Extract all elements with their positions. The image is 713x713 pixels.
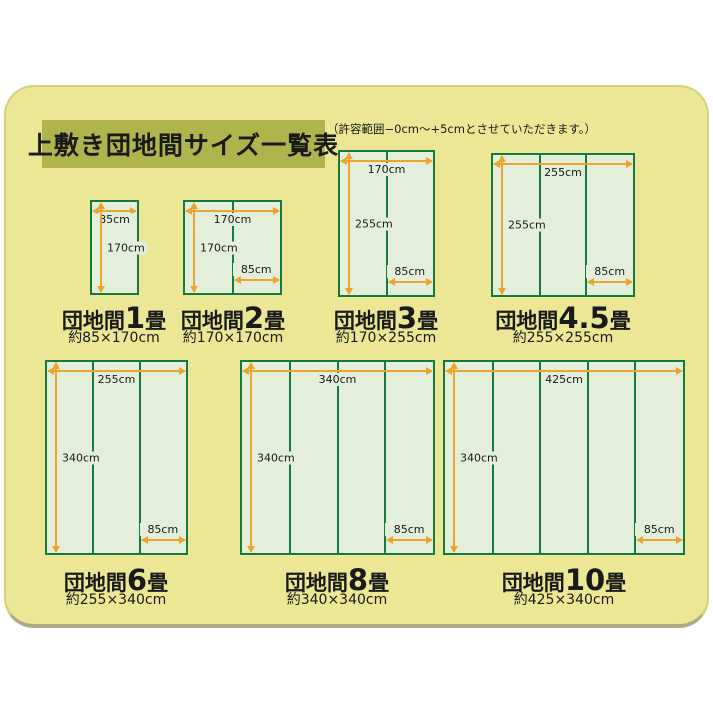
size-chart-image: 上敷き団地間サイズ一覧表 （許容範囲−0cm〜+5cmとさせていただきます。） … [0, 0, 713, 713]
width-arrow-icon [186, 210, 279, 212]
panel-divider [337, 362, 339, 553]
height-arrow-icon [250, 363, 252, 552]
height-arrow-icon [348, 153, 350, 294]
mat-size-caption: 約255×255cm [463, 329, 663, 347]
page-title: 上敷き団地間サイズ一覧表 [28, 126, 339, 162]
height-dimension: 340cm [255, 451, 297, 464]
title-box: 上敷き団地間サイズ一覧表 [42, 120, 325, 168]
panel-divider [539, 362, 541, 553]
width-dimension: 85cm [97, 213, 132, 226]
width-dimension: 425cm [543, 373, 585, 386]
mat-diagram-10jo: 425cm 340cm 85cm [443, 360, 685, 555]
panel-width-dimension: 85cm [586, 265, 633, 278]
panel-width-arrow-icon [637, 539, 682, 541]
height-dimension: 340cm [458, 451, 500, 464]
width-dimension: 170cm [366, 163, 408, 176]
width-arrow-icon [446, 370, 682, 372]
panel-width-arrow-icon [142, 539, 185, 541]
mat-size-caption: 約425×340cm [464, 591, 664, 609]
height-dimension: 170cm [198, 241, 240, 254]
height-arrow-icon [501, 156, 503, 294]
mat-diagram-4-5jo: 255cm 255cm 85cm [491, 153, 635, 297]
width-dimension: 340cm [317, 373, 359, 386]
height-dimension: 255cm [353, 217, 395, 230]
mat-diagram-2jo: 170cm 170cm 85cm [183, 200, 282, 295]
height-arrow-icon [193, 203, 195, 292]
height-arrow-icon [55, 363, 57, 552]
width-dimension: 255cm [542, 166, 584, 179]
height-dimension: 170cm [105, 241, 147, 254]
mat-size-caption: 約255×340cm [16, 591, 216, 609]
width-arrow-icon [494, 163, 632, 165]
panel-width-arrow-icon [387, 539, 432, 541]
height-arrow-icon [100, 203, 102, 292]
panel-width-dimension: 85cm [140, 523, 186, 536]
width-dimension: 170cm [212, 213, 254, 226]
panel-width-dimension: 85cm [385, 523, 433, 536]
mat-size-caption: 約170×255cm [286, 329, 486, 347]
mat-diagram-1jo: 85cm 170cm [90, 200, 139, 295]
width-dimension: 255cm [96, 373, 138, 386]
panel-width-arrow-icon [588, 281, 632, 283]
panel-width-dimension: 85cm [387, 265, 434, 278]
mat-diagram-8jo: 340cm 340cm 85cm [240, 360, 435, 555]
width-arrow-icon [48, 370, 185, 372]
width-arrow-icon [341, 160, 432, 162]
panel-width-arrow-icon [235, 279, 280, 281]
width-arrow-icon [243, 370, 432, 372]
panel-divider [587, 362, 589, 553]
panel-width-dimension: 85cm [635, 523, 683, 536]
height-dimension: 340cm [60, 451, 102, 464]
height-dimension: 255cm [506, 219, 548, 232]
mat-diagram-3jo: 170cm 255cm 85cm [338, 150, 435, 297]
height-arrow-icon [453, 363, 455, 552]
mat-diagram-6jo: 255cm 340cm 85cm [45, 360, 188, 555]
tolerance-note: （許容範囲−0cm〜+5cmとさせていただきます。） [327, 121, 596, 137]
panel-width-arrow-icon [389, 281, 433, 283]
panel-width-dimension: 85cm [233, 263, 281, 276]
mat-size-caption: 約340×340cm [237, 591, 437, 609]
